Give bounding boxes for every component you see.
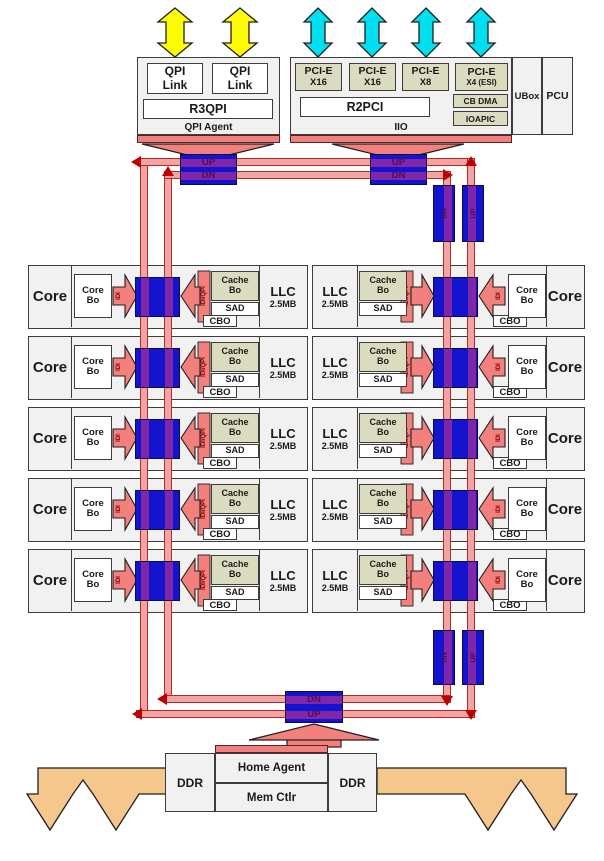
ring-stop-cbo <box>135 490 180 530</box>
mem-ctlr-box: Mem Ctlr <box>215 783 328 812</box>
ring-stop-stripe <box>444 278 452 316</box>
llc-size-label: 2.5MB <box>270 583 297 593</box>
core-bo-box: Core Bo <box>74 345 112 389</box>
cbo-box: CBO <box>203 528 237 540</box>
qpi-agent-caption: QPI Agent <box>137 120 280 134</box>
ddr-left-box: DDR <box>165 753 215 812</box>
r2pci-box: R2PCI <box>300 97 430 117</box>
cache-bo-box: Cache Bo <box>211 342 259 372</box>
cbo-to-ring-arrow-icon <box>181 417 200 459</box>
ring-up-label: UP <box>371 158 426 168</box>
ring-stop-stripe <box>141 420 149 458</box>
llc-section: LLC 2.5MB <box>313 550 358 611</box>
llc-size-label: 2.5MB <box>270 441 297 451</box>
llc-size-label: 2.5MB <box>270 299 297 309</box>
llc-label: LLC <box>270 356 295 370</box>
sad-box: SAD <box>211 515 259 529</box>
sad-box: SAD <box>359 515 407 529</box>
idi-qpi-label: IDI/QPI <box>201 499 207 519</box>
llc-size-label: 2.5MB <box>322 299 349 309</box>
sad-box: SAD <box>211 444 259 458</box>
pcie-x8-box: PCI-E X8 <box>402 63 449 91</box>
ddr-right-box: DDR <box>328 753 377 812</box>
pcie-width-label: X16 <box>364 77 381 88</box>
ring-up-label: UP <box>446 204 501 224</box>
ring-stop-stripe <box>165 420 173 458</box>
llc-section: LLC 2.5MB <box>259 550 306 611</box>
home-agent-to-ring-arrow-icon <box>249 724 379 740</box>
core-bo-box: Core Bo <box>74 416 112 460</box>
ring-stop-cbo <box>433 348 478 388</box>
llc-label: LLC <box>322 569 347 583</box>
idi-label: IDI <box>496 576 502 584</box>
sad-box: SAD <box>211 302 259 316</box>
cb-dma-box: CB DMA <box>453 94 508 108</box>
ring-stop-qpi: UP DN <box>180 154 237 185</box>
ubox-box: UBox <box>512 57 542 135</box>
cbo-box: CBO <box>203 315 237 327</box>
ddr-right-channels-arrow-icon <box>377 768 577 830</box>
llc-label: LLC <box>270 285 295 299</box>
llc-size-label: 2.5MB <box>322 370 349 380</box>
pcie-label: PCI-E <box>358 66 386 77</box>
core-label: Core <box>546 266 583 327</box>
ring-stop-vertical: UP <box>462 630 484 685</box>
ring-stop-stripe <box>141 349 149 387</box>
idi-label: IDI <box>496 434 502 442</box>
core-bo-box: Core Bo <box>508 416 546 460</box>
ring-stop-cbo <box>433 277 478 317</box>
llc-label: LLC <box>322 498 347 512</box>
idi-qpi-label: IDI/QPI <box>201 428 207 448</box>
pcie-width-label: X4 (ESI) <box>466 78 496 88</box>
cbo-box: CBO <box>203 599 237 611</box>
pcie-arrow-icon <box>412 8 440 57</box>
cache-bo-box: Cache Bo <box>211 555 259 585</box>
ring-stop-stripe <box>444 420 452 458</box>
cbo-to-ring-arrow-icon <box>181 488 200 530</box>
llc-label: LLC <box>322 356 347 370</box>
cbo-to-ring-arrow-icon <box>411 488 434 530</box>
cache-bo-box: Cache Bo <box>211 484 259 514</box>
ring-stop-cbo <box>433 419 478 459</box>
sad-box: SAD <box>359 586 407 600</box>
ring-stop-stripe <box>468 278 476 316</box>
ring-stop-cbo <box>135 277 180 317</box>
core-bo-box: Core Bo <box>74 274 112 318</box>
core-label: Core <box>29 266 72 327</box>
llc-label: LLC <box>322 427 347 441</box>
core-label: Core <box>29 408 72 469</box>
pcie-label: PCI-E <box>467 67 495 78</box>
cbo-to-ring-arrow-icon <box>411 346 434 388</box>
cbo-to-ring-arrow-icon <box>411 417 434 459</box>
pcie-x4-esi-box: PCI-E X4 (ESI) <box>455 63 508 91</box>
ring-stop-cbo <box>135 348 180 388</box>
idi-label: IDI <box>116 292 122 300</box>
core-bo-box: Core Bo <box>74 558 112 602</box>
pcie-arrow-icon <box>304 8 332 57</box>
core-bo-box: Core Bo <box>508 487 546 531</box>
ring-up-label: UP <box>447 648 500 668</box>
idi-qpi-label: IDI/QPI <box>201 286 207 306</box>
sad-box: SAD <box>359 302 407 316</box>
ring-dn-label: DN <box>286 695 342 705</box>
ddr-left-channels-arrow-icon <box>27 768 166 830</box>
llc-section: LLC 2.5MB <box>313 266 358 327</box>
qpi-link-box-1: QPI Link <box>147 63 203 94</box>
r3qpi-box: R3QPI <box>143 99 273 119</box>
idi-label: IDI <box>116 576 122 584</box>
core-bo-box: Core Bo <box>508 345 546 389</box>
ring-stop-stripe <box>468 420 476 458</box>
ring-stop-stripe <box>141 562 149 600</box>
idi-label: IDI <box>116 434 122 442</box>
ring-stop-stripe <box>468 491 476 529</box>
llc-label: LLC <box>322 285 347 299</box>
pcu-box: PCU <box>542 57 573 135</box>
core-bo-box: Core Bo <box>508 274 546 318</box>
ring-stop-stripe <box>165 491 173 529</box>
ring-stop-cbo <box>433 490 478 530</box>
llc-size-label: 2.5MB <box>270 512 297 522</box>
ring-stop-stripe <box>165 562 173 600</box>
qpi-link-box-2: QPI Link <box>212 63 268 94</box>
ring-stop-stripe <box>165 349 173 387</box>
sad-box: SAD <box>359 444 407 458</box>
ring-stop-stripe <box>444 349 452 387</box>
ring-stop-vertical: UP <box>462 185 484 242</box>
core-label: Core <box>546 408 583 469</box>
ring-stop-stripe <box>444 562 452 600</box>
ring-stop-stripe <box>141 491 149 529</box>
idi-label: IDI <box>496 505 502 513</box>
sad-box: SAD <box>211 373 259 387</box>
llc-section: LLC 2.5MB <box>313 337 358 398</box>
sad-box: SAD <box>359 373 407 387</box>
ring-dn-label: DN <box>181 171 236 181</box>
core-bo-box: Core Bo <box>74 487 112 531</box>
llc-section: LLC 2.5MB <box>313 408 358 469</box>
llc-section: LLC 2.5MB <box>259 408 306 469</box>
cbo-box: CBO <box>203 386 237 398</box>
idi-label: IDI <box>116 363 122 371</box>
cache-bo-box: Cache Bo <box>359 271 407 301</box>
pcie-label: PCI-E <box>411 66 439 77</box>
core-label: Core <box>29 337 72 398</box>
qpi-agent-ring-bar <box>137 135 280 143</box>
llc-label: LLC <box>270 427 295 441</box>
pcie-x16-box-2: PCI-E X16 <box>349 63 396 91</box>
idi-label: IDI <box>116 505 122 513</box>
home-agent-box: Home Agent <box>215 753 328 783</box>
ring-up-label: UP <box>181 158 236 168</box>
llc-size-label: 2.5MB <box>270 370 297 380</box>
cache-bo-box: Cache Bo <box>211 271 259 301</box>
llc-section: LLC 2.5MB <box>313 479 358 540</box>
core-label: Core <box>546 479 583 540</box>
pcie-width-label: X16 <box>310 77 327 88</box>
ring-stop-stripe <box>468 562 476 600</box>
ring-stop-stripe <box>468 349 476 387</box>
iio-caption: IIO <box>290 120 512 134</box>
cbo-box: CBO <box>203 457 237 469</box>
ring-stop-cbo <box>135 419 180 459</box>
cbo-to-ring-arrow-icon <box>181 275 200 317</box>
qpi-link-arrow-icon <box>158 8 192 57</box>
cbo-to-ring-arrow-icon <box>181 346 200 388</box>
cache-bo-box: Cache Bo <box>359 484 407 514</box>
ring-stop-home-agent: DN UP <box>285 691 343 723</box>
core-label: Core <box>29 479 72 540</box>
cache-bo-box: Cache Bo <box>359 413 407 443</box>
ring-dn-label: DN <box>371 171 426 181</box>
pcie-width-label: X8 <box>420 77 432 88</box>
ring-stop-stripe <box>444 491 452 529</box>
cbo-to-ring-arrow-icon <box>181 559 200 601</box>
idi-label: IDI <box>496 363 502 371</box>
iio-ring-bar <box>290 135 512 143</box>
llc-label: LLC <box>270 569 295 583</box>
llc-section: LLC 2.5MB <box>259 337 306 398</box>
core-label: Core <box>29 550 72 611</box>
ring-stop-iio: UP DN <box>370 154 427 185</box>
cbo-to-ring-arrow-icon <box>411 559 434 601</box>
idi-qpi-label: IDI/QPI <box>201 570 207 590</box>
idi-qpi-label: IDI/QPI <box>201 357 207 377</box>
llc-size-label: 2.5MB <box>322 441 349 451</box>
ring-stop-cbo <box>433 561 478 601</box>
pcie-arrow-icon <box>358 8 386 57</box>
cpu-ring-architecture-diagram: QPI Link QPI Link R3QPI QPI Agent PCI-E … <box>0 0 604 861</box>
qpi-link-arrow-icon <box>223 8 257 57</box>
pcie-label: PCI-E <box>304 66 332 77</box>
home-agent-ring-bar <box>215 745 328 753</box>
ring-stop-stripe <box>165 278 173 316</box>
llc-label: LLC <box>270 498 295 512</box>
llc-size-label: 2.5MB <box>322 583 349 593</box>
cache-bo-box: Cache Bo <box>211 413 259 443</box>
ring-stop-cbo <box>135 561 180 601</box>
cbo-to-ring-arrow-icon <box>411 275 434 317</box>
idi-label: IDI <box>496 292 502 300</box>
llc-section: LLC 2.5MB <box>259 479 306 540</box>
pcie-x16-box-1: PCI-E X16 <box>295 63 342 91</box>
cache-bo-box: Cache Bo <box>359 555 407 585</box>
cache-bo-box: Cache Bo <box>359 342 407 372</box>
core-label: Core <box>546 550 583 611</box>
ring-stop-stripe <box>141 278 149 316</box>
llc-section: LLC 2.5MB <box>259 266 306 327</box>
core-bo-box: Core Bo <box>508 558 546 602</box>
sad-box: SAD <box>211 586 259 600</box>
ring-up-label: UP <box>286 710 342 720</box>
llc-size-label: 2.5MB <box>322 512 349 522</box>
core-label: Core <box>546 337 583 398</box>
pcie-arrow-icon <box>467 8 495 57</box>
